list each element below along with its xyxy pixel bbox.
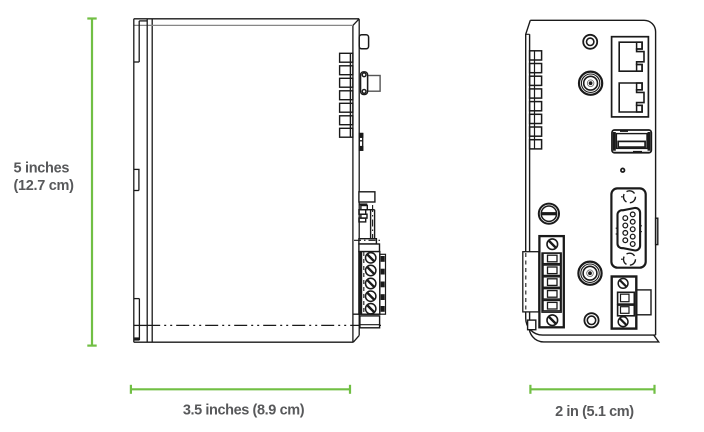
- svg-text:3.5 inches (8.9 cm): 3.5 inches (8.9 cm): [183, 403, 305, 419]
- svg-text:5 inches: 5 inches: [14, 161, 70, 177]
- svg-text:(12.7 cm): (12.7 cm): [14, 178, 75, 194]
- svg-text:2 in (5.1 cm): 2 in (5.1 cm): [555, 404, 634, 420]
